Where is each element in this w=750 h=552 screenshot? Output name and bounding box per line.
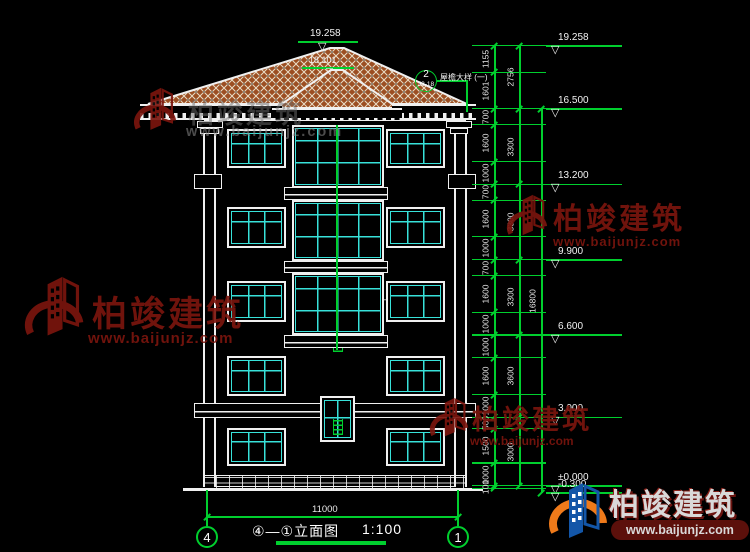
extension-line bbox=[472, 462, 546, 463]
dimension-label: 1155 bbox=[482, 50, 491, 68]
bottom-dimension-line bbox=[207, 516, 458, 518]
elevation-marker-label: 6.600 bbox=[558, 321, 583, 332]
dimension-label: 1000 bbox=[482, 337, 491, 356]
dimension-label: 700 bbox=[482, 185, 491, 199]
extension-line bbox=[472, 394, 546, 395]
elevation-marker-triangle: ▽ bbox=[551, 45, 559, 55]
elevation-marker-label: 13.200 bbox=[558, 170, 589, 181]
site-logo: 柏竣建筑 www.baijunjz.com bbox=[545, 476, 750, 550]
dimension-label: 700 bbox=[482, 261, 491, 275]
watermark-logo-icon bbox=[22, 268, 86, 356]
watermark-brand: 柏竣建筑 bbox=[553, 194, 685, 238]
watermark-url: www.baijunjz.com bbox=[186, 124, 343, 140]
dimension-label: 3300 bbox=[507, 137, 516, 156]
elevation-marker-triangle: ▽ bbox=[551, 259, 559, 269]
watermark-brand: 柏竣建筑 bbox=[472, 398, 592, 437]
elevation-marker-triangle: ▽ bbox=[551, 108, 559, 118]
elevation-marker-triangle: ▽ bbox=[551, 334, 559, 344]
dimension-label: 1000 bbox=[482, 163, 491, 182]
extension-line bbox=[472, 334, 546, 335]
elevation-marker-label: 19.258 bbox=[558, 32, 589, 43]
watermark-url: www.baijunjz.com bbox=[88, 330, 233, 347]
dimension-label: 700 bbox=[482, 110, 491, 124]
title-underline-bar bbox=[276, 541, 386, 545]
dimension-label: 100 bbox=[482, 480, 491, 494]
axis-extension-right bbox=[457, 490, 459, 526]
site-logo-url: www.baijunjz.com bbox=[611, 520, 749, 540]
watermark-logo-icon bbox=[132, 82, 178, 144]
dimension-layer: 11000 4 1 ④—①立面图 1:100 11551601700160010… bbox=[0, 0, 750, 552]
dimension-label: 1000 bbox=[482, 239, 491, 258]
axis-extension-left bbox=[206, 490, 208, 526]
dimension-label: 1600 bbox=[482, 367, 491, 386]
site-logo-icon bbox=[545, 478, 609, 548]
dimension-label: 1601 bbox=[482, 81, 491, 100]
dimension-label: 2756 bbox=[507, 68, 516, 87]
cad-elevation-canvas: 19.258 ▽ 18.101 ▽ 2 J3-18 屋檐大样 (一) 1 J3-… bbox=[0, 0, 750, 552]
dimension-label: 3300 bbox=[507, 288, 516, 307]
dim-tick bbox=[537, 489, 544, 496]
elevation-marker-triangle: ▽ bbox=[551, 183, 559, 193]
site-logo-brand: 柏竣建筑 bbox=[609, 480, 737, 524]
watermark-logo-icon bbox=[428, 392, 470, 450]
elevation-marker-label: 16.500 bbox=[558, 95, 589, 106]
drawing-title: ④—①立面图 bbox=[252, 521, 339, 541]
bottom-width-dimension: 11000 bbox=[312, 504, 338, 515]
watermark-logo-icon bbox=[505, 188, 549, 250]
extension-line bbox=[472, 45, 546, 46]
dimension-label: 1600 bbox=[482, 285, 491, 304]
dimension-label: 1600 bbox=[482, 209, 491, 228]
axis-bubble-1: 1 bbox=[447, 526, 469, 548]
axis-bubble-4: 4 bbox=[196, 526, 218, 548]
drawing-scale: 1:100 bbox=[362, 521, 402, 537]
extension-line bbox=[472, 275, 546, 276]
dimension-label: 1000 bbox=[482, 314, 491, 333]
dimension-label: 16800 bbox=[529, 289, 538, 313]
watermark-url: www.baijunjz.com bbox=[553, 234, 681, 249]
extension-line bbox=[472, 124, 546, 125]
extension-line bbox=[472, 161, 546, 162]
dimension-label: 1600 bbox=[482, 134, 491, 153]
extension-line bbox=[472, 357, 546, 358]
watermark-url: www.baijunjz.com bbox=[470, 434, 574, 448]
dimension-label: 3600 bbox=[507, 367, 516, 386]
